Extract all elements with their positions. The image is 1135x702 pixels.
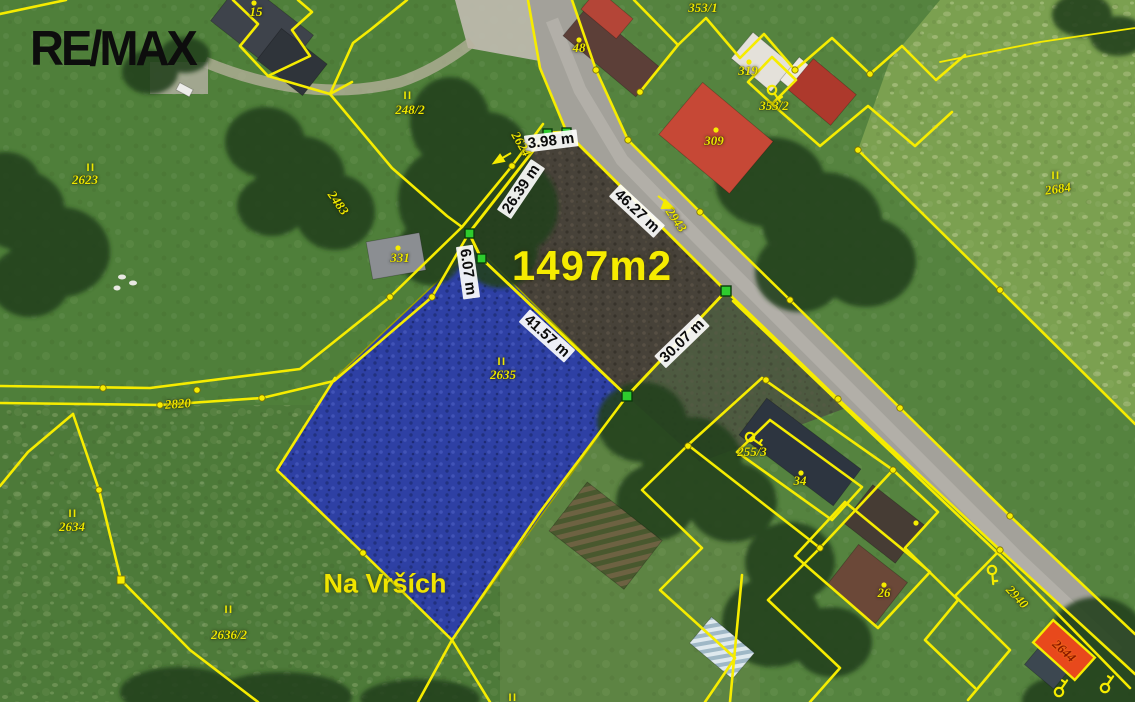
parcel-label-15: 15 [250,4,263,20]
parcel-label-2634: 2634 [59,519,85,535]
parcel-label-2820: 2820 [164,395,191,413]
parcel-label-2636-2: 2636/2 [211,627,247,643]
parcel-label-248-2: 248/2 [395,102,425,118]
land-use-marker-bottom: II [508,692,517,702]
parcel-label-353-1: 353/1 [688,0,718,16]
parcel-label-2623: 2623 [72,172,98,188]
parcel-label-309: 309 [704,133,724,149]
parcel-label-331: 331 [390,250,410,266]
parcel-label-319: 319 [738,63,758,79]
land-use-marker-248-2: II [403,90,412,102]
parcel-label-34: 34 [794,473,807,489]
parcel-label-48: 48 [573,40,586,56]
remax-logo: RE/MAX [30,19,195,77]
parcel-label-26: 26 [878,585,891,601]
parcel-label-353-2: 353/2 [759,98,789,114]
aerial-map: RE/MAX 1497m2 Na Vrších 3.98 m 26.39 m 6… [0,0,1135,702]
parcel-label-255-3: 255/3 [737,444,767,460]
area-label: 1497m2 [512,242,672,290]
place-label: Na Vrších [323,569,446,600]
parcel-label-2635: 2635 [490,367,516,383]
land-use-marker-2636-2: II [224,604,233,616]
